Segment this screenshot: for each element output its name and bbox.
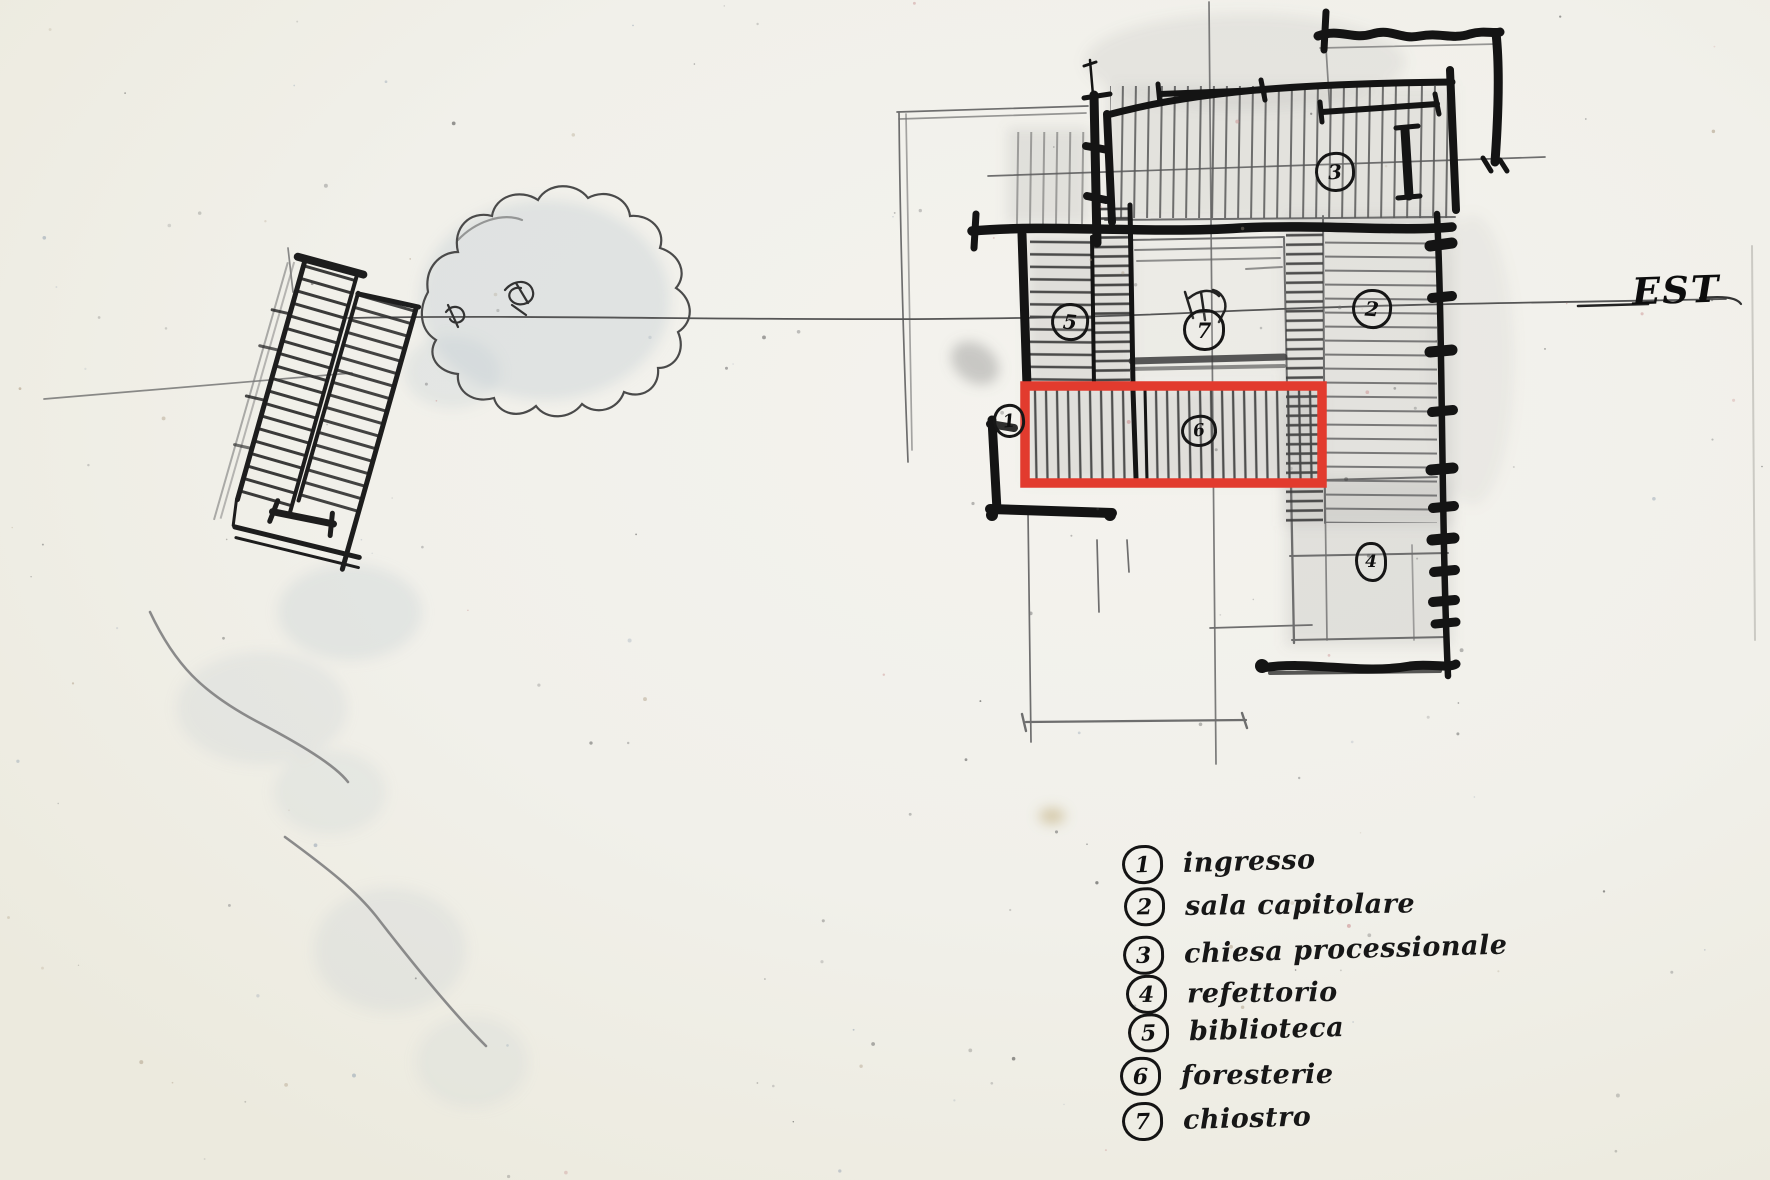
plan-marker-number: 3 bbox=[1327, 160, 1342, 185]
plan-marker-number: 5 bbox=[1062, 309, 1078, 334]
legend-item-label: ingresso bbox=[1183, 844, 1316, 879]
sketch-sheet: 1 2 3 4 5 6 7 EST 1 ingresso 2 sala capi… bbox=[0, 0, 1770, 1180]
legend-item-label: foresterie bbox=[1181, 1059, 1334, 1092]
legend-item-refettorio: 4 refettorio bbox=[1126, 973, 1338, 1014]
legend-number-circle: 3 bbox=[1123, 935, 1165, 975]
plan-sketch-drawing bbox=[0, 0, 1770, 1180]
plan-marker-refettorio: 4 bbox=[1355, 542, 1387, 582]
legend-item-label: chiostro bbox=[1183, 1101, 1312, 1136]
guest-room-hatch bbox=[1028, 389, 1320, 481]
legend-item-biblioteca: 5 biblioteca bbox=[1127, 1008, 1344, 1053]
legend-item-label: refettorio bbox=[1187, 977, 1338, 1010]
plan-marker-number: 7 bbox=[1197, 318, 1212, 343]
legend-number-circle: 1 bbox=[1121, 845, 1163, 885]
plan-marker-number: 1 bbox=[1002, 410, 1017, 432]
legend-item-label: chiesa processionale bbox=[1184, 930, 1508, 970]
legend-number-circle: 4 bbox=[1126, 975, 1167, 1014]
legend-item-ingresso: 1 ingresso bbox=[1121, 840, 1316, 884]
chapter-wing-hatch bbox=[1325, 216, 1437, 523]
east-direction-label: EST bbox=[1631, 266, 1721, 313]
legend-item-chiostro: 7 chiostro bbox=[1121, 1097, 1311, 1141]
legend-item-sala-capitolare: 2 sala capitolare bbox=[1124, 884, 1415, 926]
entry-curtain-hatch bbox=[1008, 132, 1086, 224]
legend-number-circle: 2 bbox=[1124, 887, 1165, 926]
plan-marker-number: 2 bbox=[1364, 297, 1380, 322]
legend-item-label: sala capitolare bbox=[1185, 888, 1415, 921]
legend-number-circle: 7 bbox=[1121, 1102, 1163, 1142]
plan-marker-chiostro: 7 bbox=[1183, 309, 1225, 351]
legend-number-circle: 5 bbox=[1127, 1013, 1169, 1053]
legend-number-circle: 6 bbox=[1120, 1057, 1161, 1096]
paper-speckles bbox=[7, 2, 1763, 1178]
plan-marker-number: 6 bbox=[1192, 420, 1207, 441]
legend-item-label: biblioteca bbox=[1189, 1012, 1345, 1047]
tilted-building-sketch bbox=[207, 253, 437, 574]
plan-marker-number: 4 bbox=[1365, 552, 1377, 572]
legend-item-foresterie: 6 foresterie bbox=[1120, 1055, 1334, 1096]
